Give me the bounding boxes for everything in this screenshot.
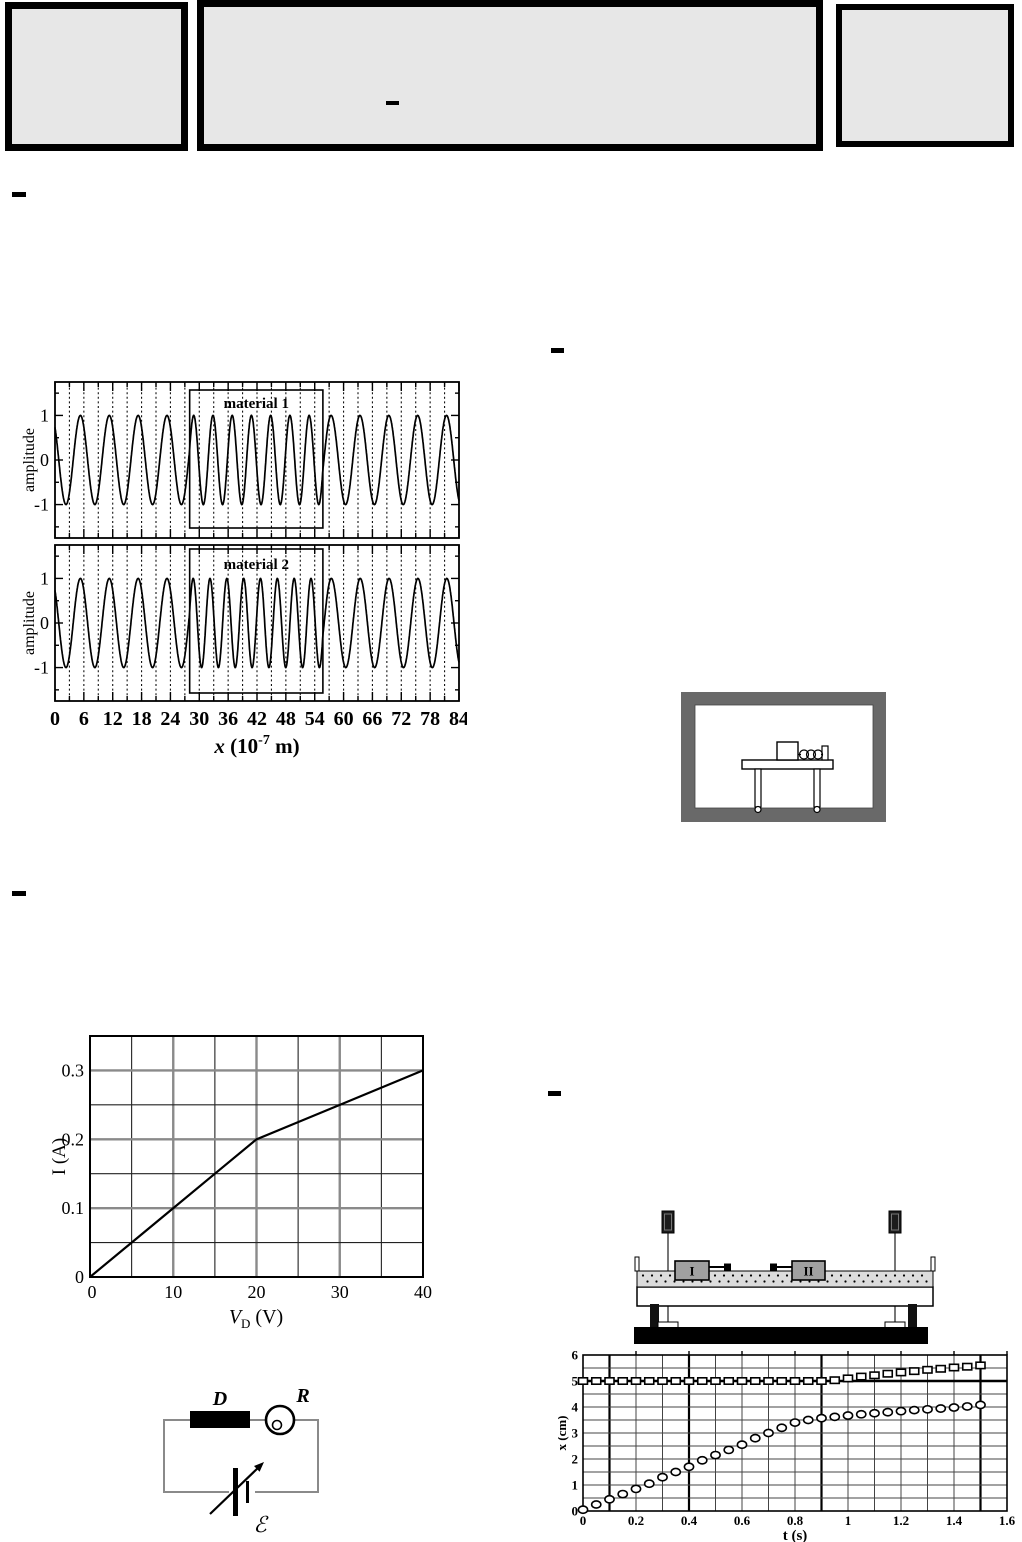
data-point [830, 1413, 839, 1420]
x-axis-label: t (s) [783, 1528, 808, 1542]
data-point [910, 1407, 919, 1414]
bumper-tip [724, 1264, 731, 1271]
svg-text:-1: -1 [34, 495, 49, 515]
bumper-tip [770, 1264, 777, 1271]
data-point [592, 1378, 601, 1384]
x-tick-labels: 010203040 [88, 1282, 433, 1302]
track-end-post [931, 1257, 935, 1271]
svg-text:1: 1 [40, 405, 49, 425]
data-point [724, 1446, 733, 1453]
data-point [671, 1378, 680, 1384]
data-point [950, 1364, 959, 1370]
header-box-left [5, 2, 188, 151]
data-point [817, 1378, 826, 1384]
data-point [737, 1441, 746, 1448]
data-point [883, 1409, 892, 1416]
data-point [804, 1378, 813, 1384]
data-point [751, 1435, 760, 1442]
table-leg [755, 769, 761, 807]
data-point [976, 1401, 985, 1408]
data-point [843, 1412, 852, 1419]
variable-battery [210, 1462, 264, 1516]
svg-text:6: 6 [572, 1348, 579, 1363]
svg-text:84: 84 [449, 708, 467, 730]
data-point [711, 1378, 720, 1384]
svg-text:1.2: 1.2 [893, 1513, 909, 1528]
svg-text:66: 66 [362, 708, 382, 730]
device-D [190, 1411, 250, 1428]
data-point [936, 1366, 945, 1372]
svg-text:4: 4 [572, 1400, 579, 1415]
dash-mark [12, 192, 26, 197]
data-point [817, 1415, 826, 1422]
svg-text:0: 0 [40, 450, 49, 470]
svg-text:0.2: 0.2 [628, 1513, 644, 1528]
wave-panel-2: material 210-1amplitude [22, 545, 459, 701]
data-point [764, 1378, 773, 1384]
data-point [711, 1452, 720, 1459]
svg-text:48: 48 [276, 708, 296, 730]
data-point [645, 1378, 654, 1384]
data-point [658, 1474, 667, 1481]
data-point [738, 1378, 747, 1384]
svg-text:30: 30 [331, 1282, 349, 1302]
dash-mark [548, 1091, 561, 1096]
data-point [632, 1378, 641, 1384]
data-point [923, 1367, 932, 1373]
svg-text:20: 20 [248, 1282, 266, 1302]
data-point [658, 1378, 667, 1384]
svg-text:0: 0 [40, 613, 49, 633]
data-point [671, 1468, 680, 1475]
data-point [936, 1405, 945, 1412]
svg-text:1: 1 [845, 1513, 852, 1528]
svg-text:6: 6 [79, 708, 89, 730]
table-foot [755, 807, 761, 813]
y-axis-label: x (cm) [558, 1415, 569, 1450]
data-point [618, 1378, 627, 1384]
svg-text:30: 30 [189, 708, 209, 730]
data-point [684, 1463, 693, 1470]
data-point [777, 1424, 786, 1431]
data-point [870, 1410, 879, 1417]
svg-text:0: 0 [580, 1513, 587, 1528]
wave-curve [55, 415, 459, 504]
material-label: material 2 [224, 557, 289, 573]
circuit-diagram: DRℰ [150, 1362, 350, 1540]
data-point [592, 1501, 601, 1508]
svg-text:78: 78 [420, 708, 440, 730]
y-tick-labels: 0123456 [572, 1348, 579, 1519]
svg-text:72: 72 [391, 708, 411, 730]
data-point [791, 1378, 800, 1384]
airtrack-apparatus-diagram: III [614, 1198, 944, 1348]
dash-mark [12, 891, 26, 896]
svg-text:1: 1 [40, 568, 49, 588]
svg-text:0: 0 [88, 1282, 97, 1302]
track-body [637, 1287, 933, 1306]
data-point [685, 1378, 694, 1384]
dash-mark [386, 101, 399, 105]
meter-label: R [295, 1385, 309, 1407]
data-point [870, 1372, 879, 1378]
end-post [822, 746, 828, 760]
table-foot [814, 807, 820, 813]
data-point [883, 1371, 892, 1377]
svg-text:0.6: 0.6 [734, 1513, 751, 1528]
dash-mark [551, 348, 564, 353]
svg-text:54: 54 [305, 708, 325, 730]
svg-text:1.4: 1.4 [946, 1513, 963, 1528]
data-point [857, 1373, 866, 1379]
header-box-middle [197, 0, 823, 151]
track-end-post [635, 1257, 639, 1271]
position-time-graph: 012345600.20.40.60.811.21.41.6t (s)x (cm… [558, 1346, 1022, 1542]
data-point [751, 1378, 760, 1384]
data-point [698, 1378, 707, 1384]
data-point [896, 1408, 905, 1415]
data-point [844, 1375, 853, 1381]
data-point [857, 1411, 866, 1418]
data-point [631, 1485, 640, 1492]
x-axis-label: VD (V) [229, 1306, 283, 1328]
svg-text:0: 0 [75, 1267, 84, 1287]
wave-curve [55, 578, 459, 667]
svg-text:12: 12 [103, 708, 123, 730]
emf-label: ℰ [253, 1512, 269, 1537]
svg-text:0.1: 0.1 [62, 1198, 85, 1218]
data-point [579, 1378, 588, 1384]
data-point [949, 1404, 958, 1411]
data-point [923, 1406, 932, 1413]
data-point [830, 1377, 839, 1383]
support-leg [908, 1304, 917, 1330]
loop-wire [164, 1420, 318, 1492]
tabletop [742, 760, 833, 769]
data-point [910, 1368, 919, 1374]
data-point [698, 1457, 707, 1464]
svg-text:0.3: 0.3 [62, 1060, 85, 1080]
svg-text:0.4: 0.4 [681, 1513, 698, 1528]
scanned-worksheet-page: material 110-1amplitudematerial 210-1amp… [0, 0, 1022, 1542]
svg-text:0: 0 [572, 1504, 579, 1519]
data-point [724, 1378, 733, 1384]
svg-text:42: 42 [247, 708, 267, 730]
data-point [963, 1403, 972, 1410]
data-point [804, 1416, 813, 1423]
room-spring-block-diagram [680, 690, 888, 824]
svg-text:3: 3 [572, 1426, 579, 1441]
block [777, 742, 798, 760]
svg-text:18: 18 [132, 708, 152, 730]
svg-text:10: 10 [164, 1282, 182, 1302]
device-label: D [212, 1388, 227, 1410]
y-axis-label: amplitude [22, 591, 38, 655]
x-tick-labels: 0612182430364248546066727884 [50, 708, 467, 730]
iv-curve-figure: 00.10.20.3010203040VD (V)I (A) [52, 1026, 488, 1328]
svg-text:1.6: 1.6 [999, 1513, 1016, 1528]
y-axis-label: amplitude [22, 428, 38, 492]
wave-panel-1: material 110-1amplitude [22, 382, 459, 538]
svg-text:0: 0 [50, 708, 60, 730]
data-point [777, 1378, 786, 1384]
header-box-right [836, 4, 1014, 147]
table-leg [814, 769, 820, 807]
data-point [605, 1496, 614, 1503]
x-axis-label: x (10-7 m) [213, 733, 299, 758]
svg-text:0.8: 0.8 [787, 1513, 804, 1528]
data-point [790, 1419, 799, 1426]
cart-label: II [803, 1264, 813, 1279]
gridlines [90, 1036, 423, 1277]
svg-text:1: 1 [572, 1478, 579, 1493]
svg-text:36: 36 [218, 708, 238, 730]
svg-text:5: 5 [572, 1374, 579, 1389]
data-point [645, 1480, 654, 1487]
svg-text:60: 60 [334, 708, 354, 730]
data-point [976, 1362, 985, 1368]
data-point [605, 1378, 614, 1384]
data-point [618, 1491, 627, 1498]
base-bar [634, 1327, 928, 1344]
svg-text:-1: -1 [34, 658, 49, 678]
svg-text:2: 2 [572, 1452, 579, 1467]
series-cart-I [578, 1401, 985, 1513]
material-label: material 1 [224, 396, 289, 412]
svg-text:40: 40 [414, 1282, 432, 1302]
data-point [897, 1369, 906, 1375]
cart-label: I [689, 1264, 694, 1279]
x-tick-labels: 00.20.40.60.811.21.41.6 [580, 1513, 1016, 1528]
meter-R-icon [266, 1406, 294, 1434]
wave-amplitude-figure: material 110-1amplitudematerial 210-1amp… [22, 376, 467, 760]
data-point [963, 1364, 972, 1370]
data-point [764, 1429, 773, 1436]
svg-text:24: 24 [160, 708, 180, 730]
y-axis-label: I (A) [52, 1138, 70, 1175]
